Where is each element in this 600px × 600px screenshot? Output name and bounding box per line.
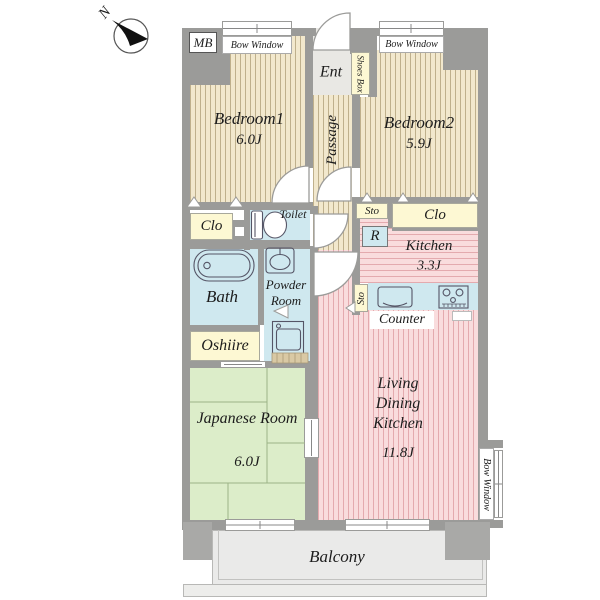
balcony-block-left: [183, 522, 212, 560]
storage-label: Sto: [356, 292, 367, 305]
balcony-label: Balcony: [309, 547, 365, 567]
kitchen-name: Kitchen: [406, 237, 453, 255]
meter-box-label: MB: [194, 35, 213, 51]
floor-plan: MB Bow Window Bow Window Shoes Box Clo S…: [0, 0, 600, 600]
meter-box: MB: [189, 32, 217, 53]
bedroom1-size: 6.0J: [236, 131, 261, 149]
japanese-ldk-sliding-door: [304, 418, 319, 458]
wall-passage-right-upper: [352, 93, 360, 168]
balcony-lower-strip: [183, 584, 487, 597]
closet-label: Clo: [424, 207, 446, 224]
japanese-room-name: Japanese Room: [195, 409, 299, 429]
japanese-oshiire-sliding-door: [220, 361, 266, 368]
bow-window-label: Bow Window: [481, 458, 492, 511]
bedroom2-bow-window-label: Bow Window: [379, 36, 444, 53]
refrigerator-space: R: [362, 226, 388, 247]
oshiire-closet: Oshiire: [190, 331, 260, 361]
kitchen-size: 3.3J: [417, 259, 441, 276]
bow-window-label: Bow Window: [231, 40, 284, 51]
shoes-box: Shoes Box: [351, 52, 370, 95]
storage-label: Sto: [365, 205, 379, 217]
japanese-room-floor: [190, 368, 305, 520]
powder-room-label: Powder Room: [258, 277, 314, 310]
wall-powder-right-upper: [310, 206, 318, 214]
bath-label: Bath: [206, 287, 238, 307]
closet-label: Clo: [201, 218, 223, 235]
japanese-room-window: [225, 519, 295, 531]
refrigerator-label: R: [370, 228, 379, 245]
japanese-room-size: 6.0J: [234, 453, 259, 471]
passage-label: Passage: [323, 115, 341, 165]
ldk-bow-window-label: Bow Window: [479, 448, 494, 520]
closet-2: Clo: [392, 203, 478, 228]
wall-bedroom1-passage: [305, 28, 313, 168]
bedroom2-size: 5.9J: [406, 135, 431, 153]
counter-label: Counter: [379, 312, 425, 328]
counter-pass-through: [452, 311, 472, 321]
kitchen-counter-top: [368, 283, 478, 310]
bedroom1-bow-window-label: Bow Window: [222, 36, 292, 54]
ldk-window: [345, 519, 430, 531]
shoes-box-label: Shoes Box: [356, 55, 366, 92]
wall-left: [182, 28, 190, 530]
bedroom2-bow-window-glass: [379, 21, 444, 36]
wall-topright-notch: [443, 28, 488, 70]
closet-1: Clo: [190, 213, 233, 240]
ldk-bow-window-glass: [494, 450, 503, 518]
balcony-block-right: [445, 522, 490, 560]
wall-bath-row-top: [190, 240, 310, 249]
storage-1: Sto: [356, 203, 388, 219]
entrance-doorway: [316, 28, 349, 36]
bow-window-label: Bow Window: [385, 39, 438, 50]
compass-north-label: N: [95, 3, 115, 22]
bedroom2-name: Bedroom2: [384, 113, 454, 133]
bedroom1-name: Bedroom1: [214, 109, 284, 129]
counter-label-box: Counter: [370, 311, 434, 329]
compass-icon: [112, 19, 148, 53]
oshiire-label: Oshiire: [201, 337, 248, 355]
clo1-notch: [234, 226, 245, 237]
bedroom1-bow-window-glass: [222, 21, 292, 36]
ldk-name: Living Dining Kitchen: [362, 374, 434, 434]
ldk-size: 11.8J: [382, 444, 414, 462]
toilet-label: Toilet: [280, 207, 307, 221]
wall-bowwindow-right-top: [478, 440, 503, 448]
storage-2: Sto: [354, 284, 368, 312]
entrance-label: Ent: [320, 62, 342, 81]
